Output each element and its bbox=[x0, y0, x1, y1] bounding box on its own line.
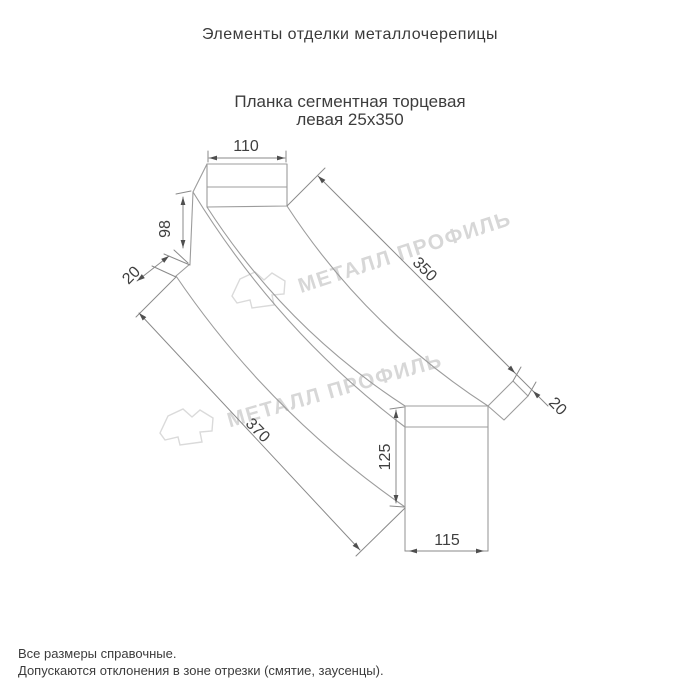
end-profile-top-left bbox=[176, 164, 287, 276]
end-profile-bottom-right bbox=[405, 381, 528, 551]
dim-370-lines bbox=[136, 277, 405, 556]
dim-110-label: 110 bbox=[233, 138, 259, 156]
dim-98-label: 98 bbox=[157, 220, 175, 238]
dim-115-label: 115 bbox=[434, 532, 460, 550]
strip-body bbox=[176, 192, 488, 507]
metall-profil-logo-icon bbox=[160, 272, 285, 445]
page: Элементы отделки металлочерепицы Планка … bbox=[0, 0, 700, 700]
dim-125-label: 125 bbox=[377, 444, 395, 471]
technical-drawing bbox=[0, 0, 700, 700]
dimension-arrowheads bbox=[137, 156, 540, 554]
